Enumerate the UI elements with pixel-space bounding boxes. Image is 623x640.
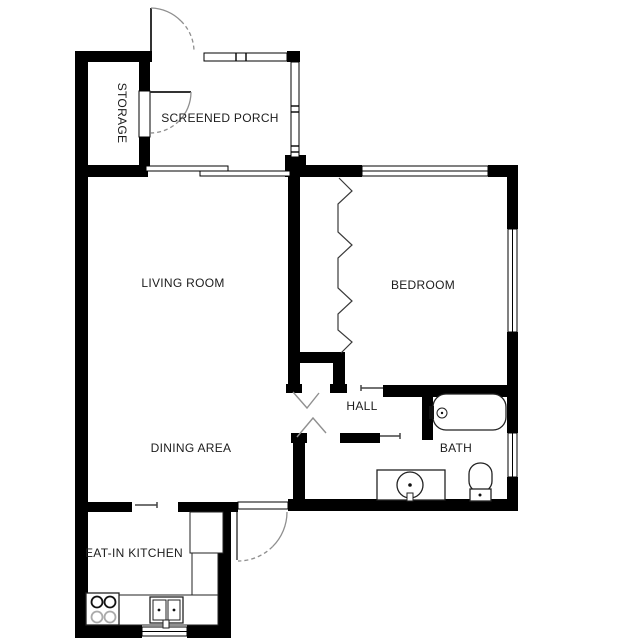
vanity-sink-fixture bbox=[377, 470, 445, 501]
wall-segment bbox=[340, 433, 380, 443]
label-hall: HALL bbox=[346, 399, 377, 413]
kitchen-fixtures bbox=[86, 512, 223, 628]
bedroom-top-window bbox=[362, 166, 488, 176]
label-dining-area: DINING AREA bbox=[151, 441, 232, 455]
counter-right bbox=[192, 553, 218, 595]
wall-segment bbox=[75, 625, 142, 638]
wall-segment bbox=[507, 332, 518, 433]
bath-right-window bbox=[508, 433, 517, 477]
wall-segment bbox=[139, 137, 150, 166]
wall-segment bbox=[293, 443, 305, 511]
hall-closet-door-swing bbox=[293, 392, 319, 408]
wall-segment bbox=[75, 165, 148, 177]
wall-segment bbox=[187, 625, 231, 638]
patio-door-swing bbox=[237, 502, 288, 561]
refrigerator-fixture bbox=[190, 512, 223, 553]
bathtub-fixture bbox=[429, 394, 506, 430]
bedroom-right-window bbox=[508, 229, 517, 332]
slider-panel bbox=[146, 166, 228, 171]
kitchen-sink-fixture bbox=[150, 597, 183, 628]
label-living-room: LIVING ROOM bbox=[141, 276, 224, 290]
stove-fixture bbox=[86, 593, 119, 625]
wall-segment bbox=[288, 165, 362, 177]
wall-segment bbox=[507, 165, 518, 229]
wall-segment bbox=[333, 352, 345, 384]
wall-segment bbox=[286, 384, 302, 393]
label-screened-porch: SCREENED PORCH bbox=[161, 111, 279, 125]
slider-panel bbox=[200, 171, 290, 176]
toilet-fixture bbox=[469, 463, 492, 501]
porch-screen-walls bbox=[204, 53, 299, 157]
label-storage: STORAGE bbox=[115, 83, 129, 144]
sliding-glass-door bbox=[146, 166, 290, 176]
label-bedroom: BEDROOM bbox=[391, 278, 455, 292]
wall-segment bbox=[139, 62, 150, 91]
label-bath: BATH bbox=[440, 441, 472, 455]
wall-segment bbox=[75, 502, 132, 512]
label-eat-in-kitchen: EAT-IN KITCHEN bbox=[85, 546, 183, 560]
floor-plan: STORAGE SCREENED PORCH LIVING ROOM BEDRO… bbox=[0, 0, 623, 640]
screen-wall-right bbox=[291, 62, 299, 157]
wall-segment bbox=[330, 384, 347, 393]
entry-door-swing bbox=[151, 8, 194, 51]
bedroom-closet-bifold-doors bbox=[338, 178, 352, 353]
wall-segment bbox=[287, 51, 300, 62]
